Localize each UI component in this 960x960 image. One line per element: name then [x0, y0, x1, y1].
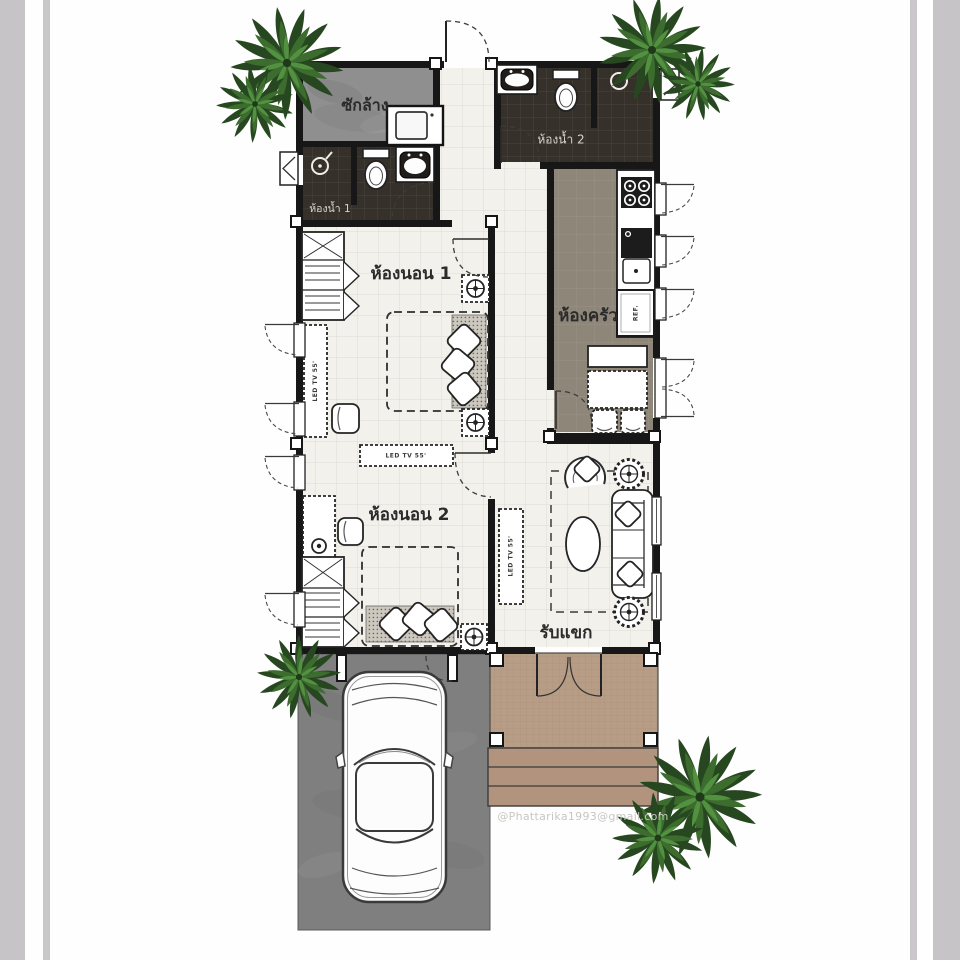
window-left [265, 455, 305, 490]
window-living [652, 573, 661, 620]
stove-icon [621, 177, 652, 208]
window-left [265, 323, 305, 357]
kitchen-label: ห้องครัว [558, 306, 618, 326]
window-left [265, 402, 305, 436]
fridge-label: REF. [633, 305, 640, 321]
coffee-table [566, 517, 600, 571]
tv-cabinet: LED TV 55' [304, 325, 327, 437]
kitchen-sink-icon [621, 228, 652, 283]
toilet-icon [553, 70, 579, 111]
window-living [652, 497, 661, 545]
nightstand-with-lamp [462, 409, 489, 436]
bathroom2-label: ห้องน้ำ 2 [537, 131, 584, 147]
tv-cabinet: LED TV 55' [360, 445, 453, 466]
laundry-label: ซักล้าง [341, 96, 388, 115]
desk-with-lamp [303, 496, 335, 558]
floor-plan-page: REF. [0, 0, 960, 960]
sink-icon [497, 65, 537, 94]
porch-floor [490, 653, 658, 748]
window-kitchen [655, 235, 694, 267]
tv-label: LED TV 55' [508, 535, 515, 576]
entrance-door-arc [446, 21, 489, 62]
window-left [265, 592, 305, 627]
dining-chair [621, 410, 645, 433]
tv-label: LED TV 55' [312, 360, 319, 401]
living-label: รับแขก [540, 623, 593, 643]
toilet-icon [363, 149, 389, 189]
sink-icon [396, 147, 434, 182]
tv-cabinet: LED TV 55' [499, 509, 523, 604]
side-table-icon [615, 460, 644, 489]
window-kitchen-double [655, 358, 694, 418]
window-kitchen [655, 183, 694, 215]
window-bathroom1 [280, 152, 298, 185]
nightstand-with-lamp [461, 624, 487, 650]
bathroom1-label: ห้องน้ำ 1 [309, 201, 350, 215]
chair-icon [338, 518, 363, 545]
refrigerator-icon: REF. [617, 290, 654, 336]
chair-icon [332, 404, 359, 433]
dining-table [588, 371, 647, 408]
tv-label: LED TV 55' [385, 453, 426, 460]
dining-bench [588, 346, 647, 367]
floor-plan-drawing: REF. [0, 0, 960, 960]
car-icon [336, 672, 453, 902]
sofa-icon [612, 490, 653, 598]
watermark: @Phattarika1993@gmail.com [497, 810, 668, 823]
dining-chair [592, 410, 617, 433]
nightstand-with-lamp [462, 275, 489, 302]
bedroom2-label: ห้องนอน 2 [369, 505, 450, 525]
bedroom1-label: ห้องนอน 1 [371, 264, 452, 284]
porch-steps [488, 748, 658, 806]
laundry-room [387, 106, 443, 145]
window-kitchen [655, 288, 694, 320]
side-table-icon [615, 598, 644, 627]
